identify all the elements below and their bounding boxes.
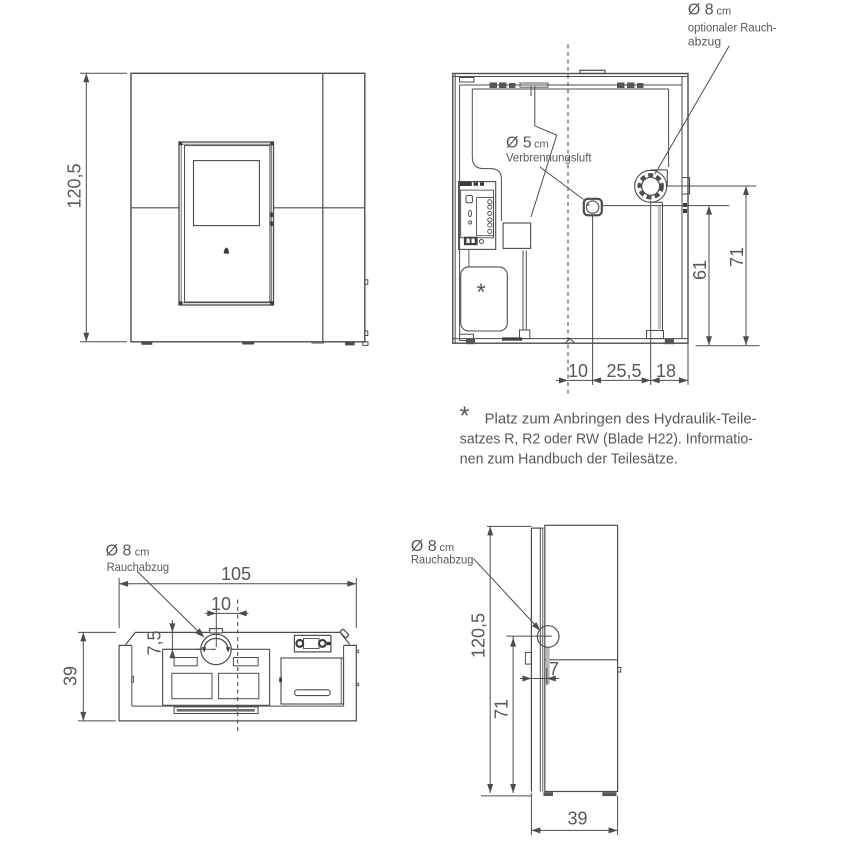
svg-text:120,5: 120,5: [65, 163, 85, 208]
svg-text:Ø 5: Ø 5: [506, 135, 532, 152]
svg-text:25,5: 25,5: [606, 361, 641, 381]
svg-text:satzes R, R2 oder RW (Blade H2: satzes R, R2 oder RW (Blade H22). Inform…: [460, 432, 753, 448]
svg-text:cm: cm: [135, 547, 150, 559]
svg-text:cm: cm: [717, 6, 732, 18]
svg-text:*: *: [476, 279, 485, 306]
svg-text:Ø 8: Ø 8: [106, 543, 132, 560]
svg-text:abzug: abzug: [688, 34, 721, 48]
svg-text:Ø 8: Ø 8: [688, 1, 714, 18]
svg-text:*: *: [460, 401, 470, 431]
svg-text:39: 39: [567, 809, 587, 829]
svg-text:7: 7: [549, 659, 559, 679]
svg-text:39: 39: [61, 666, 81, 686]
svg-text:18: 18: [656, 361, 676, 381]
svg-text:Platz zum Anbringen des Hydrau: Platz zum Anbringen des Hydraulik-Teile-: [485, 412, 757, 428]
svg-text:optionaler Rauch-: optionaler Rauch-: [688, 20, 777, 34]
svg-text:71: 71: [727, 247, 747, 267]
svg-text:61: 61: [690, 260, 710, 280]
svg-text:10: 10: [211, 594, 231, 614]
svg-text:71: 71: [492, 699, 512, 719]
svg-text:105: 105: [221, 564, 251, 584]
svg-text:7,5: 7,5: [145, 630, 165, 655]
svg-text:cm: cm: [534, 138, 549, 150]
svg-text:nen zum Handbuch der Teilesätz: nen zum Handbuch der Teilesätze.: [460, 452, 678, 468]
svg-text:120,5: 120,5: [469, 613, 489, 658]
svg-text:10: 10: [568, 361, 588, 381]
svg-text:Verbrennungsluft: Verbrennungsluft: [506, 151, 592, 165]
svg-text:Rauchabzug: Rauchabzug: [411, 553, 474, 567]
